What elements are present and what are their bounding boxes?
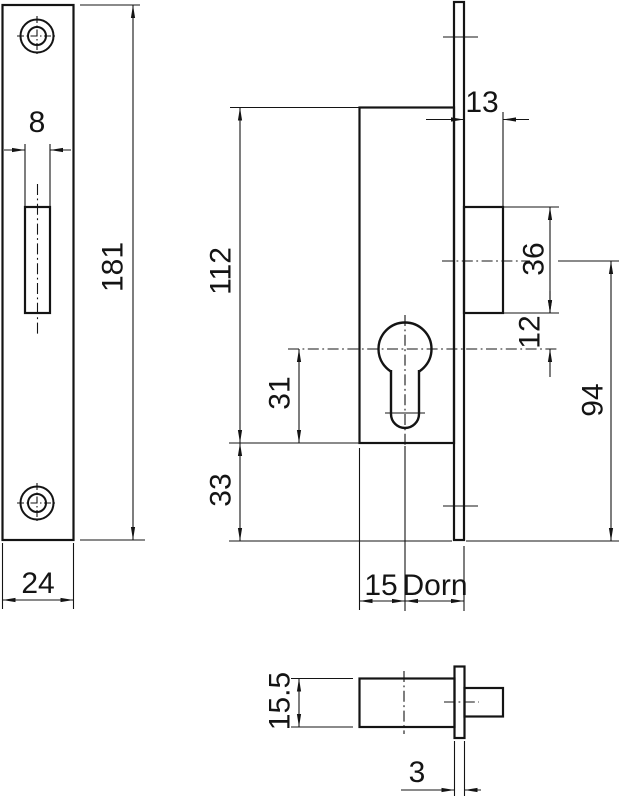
dim-case-height-label: 112 bbox=[205, 247, 238, 295]
lock-case-view: 13 112 31 33 36 12 94 15 Dorn bbox=[205, 2, 620, 611]
dim-plate-width-label: 24 bbox=[21, 567, 54, 600]
side-case-outline bbox=[360, 679, 455, 728]
faceplate-outline bbox=[454, 2, 464, 540]
screw-hole-bottom-centerlines bbox=[17, 483, 57, 523]
dim-cylinder-to-bottom-label: 31 bbox=[264, 376, 297, 409]
dim-bottom-extension-label: 33 bbox=[205, 473, 238, 506]
dim-latch-axis-label: 94 bbox=[577, 383, 610, 416]
dim-latch-to-cylinder-label: 12 bbox=[514, 315, 547, 348]
screw-hole-top-centerlines bbox=[17, 16, 57, 56]
lock-technical-drawing: 8 181 24 13 112 31 33 36 12 94 15 Dorn bbox=[0, 0, 620, 800]
drawing-sheet: 8 181 24 13 112 31 33 36 12 94 15 Dorn bbox=[0, 0, 620, 800]
dim-latch-projection-label: 13 bbox=[465, 86, 498, 119]
latch-side-view: 15.5 3 bbox=[264, 667, 504, 797]
latch-bolt-outline bbox=[464, 207, 503, 313]
strike-plate-view: 8 181 24 bbox=[3, 5, 146, 609]
dim-cylinder-offset-label: 15 bbox=[364, 569, 397, 602]
dim-case-depth-label: 15.5 bbox=[264, 672, 297, 730]
dim-slot-width-label: 8 bbox=[29, 106, 46, 139]
case-centerlines bbox=[288, 261, 558, 446]
strike-slot-outline bbox=[25, 207, 50, 313]
dim-plate-height-label: 181 bbox=[97, 242, 130, 292]
side-centerlines bbox=[404, 671, 479, 734]
dim-faceplate-thickness-label: 3 bbox=[409, 756, 426, 789]
dim-backset-label: Dorn bbox=[402, 569, 467, 602]
dim-latch-height-label: 36 bbox=[518, 242, 551, 275]
side-extension-lines bbox=[291, 679, 465, 797]
case-extension-lines bbox=[229, 108, 619, 612]
